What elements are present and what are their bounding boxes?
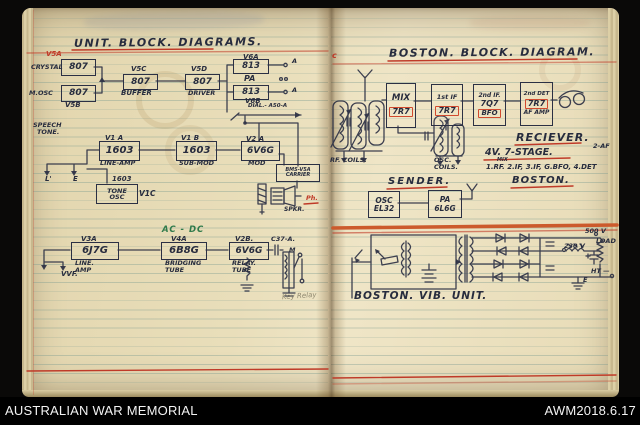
block-bms-carrier: BMS-V5ACARRIER — [276, 164, 320, 182]
block-sender-pa: PA6L6G — [428, 190, 462, 218]
label-crystal: CRYSTAL — [31, 64, 63, 71]
ink-bleedthrough — [470, 16, 590, 30]
label-sub-mod: SUB-MOD — [179, 160, 214, 167]
label-osc-coils: OSC.COILS. — [434, 157, 458, 171]
label-pa: PA — [244, 75, 255, 83]
block-6v6g-mod: 6V6G — [241, 141, 280, 161]
terminal-a1: A — [292, 58, 297, 65]
block-807-driver: 807 — [185, 74, 220, 90]
block-sender-osc: OSCEL32 — [368, 191, 400, 218]
label-load: LOAD — [596, 238, 616, 245]
block-mixer: MIX 7R7 — [386, 83, 416, 128]
block-807-crystal: 807 — [61, 59, 96, 76]
label-v1c: V1C — [139, 190, 156, 198]
label-v5b: V5B — [65, 102, 81, 109]
label-v5a: V5A — [46, 51, 62, 58]
block-807-mosc: 807 — [61, 85, 96, 102]
block-6v6g-relay: 6V6G — [229, 242, 269, 260]
notebook-gutter — [316, 8, 346, 397]
label-phones: Ph. — [306, 195, 318, 202]
block-tone-osc: TONEOSC — [96, 184, 138, 204]
archive-name: AUSTRALIAN WAR MEMORIAL — [5, 403, 198, 418]
left-page-title: UNIT. BLOCK. DIAGRAMS. — [74, 36, 263, 49]
block-if1: 1st IF 7R7 — [431, 84, 463, 126]
block-1603-lineamp: 1603 — [99, 141, 140, 161]
block-if2-bfo: 2nd IF. 7Q7 BFO — [473, 84, 506, 126]
block-6b8g: 6B8G — [161, 242, 207, 260]
label-rf-coils: RF. COILS. — [330, 157, 367, 164]
label-line-amp-2: LINE.AMP — [75, 260, 94, 274]
label-v5c: V5C — [131, 66, 146, 73]
archival-photo-notebook: UNIT. BLOCK. DIAGRAMS. V5A CRYSTAL 807 M… — [0, 0, 640, 425]
label-master-osc: M.OSC — [29, 90, 53, 97]
label-mod: MOD — [248, 160, 265, 167]
label-line-amp: LINE-AMP — [100, 160, 135, 167]
right-page-title: BOSTON. BLOCK. DIAGRAM. — [389, 46, 595, 59]
label-ac-dc: AC - DC — [162, 226, 204, 235]
label-c37a: C37-A. — [271, 236, 295, 243]
label-boston: BOSTON. — [512, 176, 570, 187]
label-vib-unit-caption: BOSTON. VIB. UNIT. — [354, 291, 487, 302]
label-tone: TONE. — [37, 129, 59, 136]
label-driver: DRIVER — [188, 90, 215, 97]
block-6j7g: 6J7G — [71, 242, 119, 260]
label-ht-minus: HT — — [591, 268, 610, 275]
label-buffer: BUFFER — [121, 90, 152, 97]
block-807-buffer: 807 — [123, 74, 158, 90]
terminal-a2: A — [292, 87, 297, 94]
label-500v: 500 V — [585, 228, 606, 235]
label-sender: SENDER. — [388, 177, 451, 188]
archive-caption-bar: AUSTRALIAN WAR MEMORIAL AWM2018.6.17 — [0, 397, 640, 425]
block-813-a: 813 — [233, 59, 269, 74]
label-vvf: VVF. — [61, 271, 78, 278]
label-earth: E — [583, 277, 587, 284]
label-l-input: L' — [45, 176, 52, 183]
label-receiver: RECIEVER. — [516, 132, 590, 144]
label-stage-list: 1.RF. 2.IF, 3.IF, G.BFO, 4.DET — [486, 164, 597, 171]
label-speaker: SPKR. — [284, 207, 304, 213]
block-det-afamp: 2nd DET 7R7 AF AMP — [520, 82, 553, 126]
label-m-contact: M — [289, 247, 295, 254]
label-e-input: E — [73, 176, 78, 183]
margin-mark: c — [332, 52, 337, 60]
page-edges-right — [608, 8, 619, 397]
label-stages: 4V. 7-STAGE. — [485, 148, 553, 158]
label-bridging-tube: BRIDGINGTUBE — [165, 260, 201, 274]
block-1603-submod: 1603 — [176, 141, 217, 161]
label-230v: 230 V — [564, 243, 585, 250]
label-relay-tube: RELAY.TUBE — [232, 260, 256, 274]
label-v5d: V5D — [191, 66, 207, 73]
label-2af: 2-AF — [593, 143, 610, 150]
label-1603-tone: 1603 — [112, 176, 131, 183]
note-dial-a50a: DIAL.- A50-A — [248, 104, 287, 110]
archive-item-id: AWM2018.6.17 — [544, 403, 636, 418]
